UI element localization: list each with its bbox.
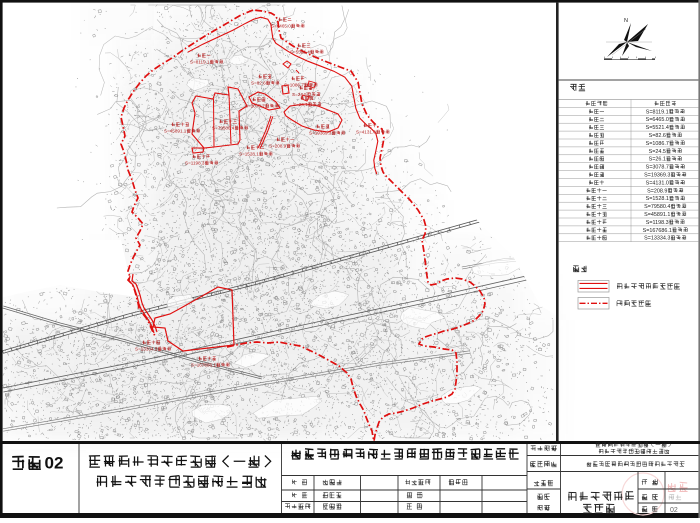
svg-text:S=45891.1: S=45891.1 — [644, 212, 670, 218]
svg-text:S=8119.1: S=8119.1 — [190, 60, 210, 65]
svg-text:S=19369.3: S=19369.3 — [644, 173, 670, 179]
svg-text:S=26.1: S=26.1 — [649, 157, 666, 163]
svg-text:S=3078.7: S=3078.7 — [245, 104, 265, 109]
svg-text:S=5521.4: S=5521.4 — [646, 125, 669, 131]
svg-text:S=5521.4: S=5521.4 — [290, 50, 310, 55]
svg-text:S=167686.1: S=167686.1 — [191, 363, 216, 368]
svg-text:S=13334.3: S=13334.3 — [644, 236, 670, 242]
svg-text:S=208.9: S=208.9 — [269, 144, 287, 149]
svg-text:S=1198.3: S=1198.3 — [185, 161, 205, 166]
svg-text:02: 02 — [670, 507, 678, 514]
svg-text:N: N — [624, 18, 628, 24]
svg-text:S=13334.3: S=13334.3 — [135, 347, 158, 352]
svg-text:S=1528.1: S=1528.1 — [239, 152, 259, 157]
svg-text:S=1086.7: S=1086.7 — [646, 141, 669, 147]
svg-text:S=4131.0: S=4131.0 — [646, 180, 669, 186]
svg-text:S=1528.1: S=1528.1 — [646, 196, 669, 202]
svg-text:S=6465.0: S=6465.0 — [646, 117, 669, 123]
svg-text:S=82.6: S=82.6 — [251, 81, 266, 86]
svg-text:S=1198.3: S=1198.3 — [646, 220, 669, 226]
svg-text:S=79580.4: S=79580.4 — [644, 204, 670, 210]
svg-text:S=8119.1: S=8119.1 — [646, 109, 669, 115]
svg-text:S=26.1: S=26.1 — [293, 102, 308, 107]
svg-text:S=6465.0: S=6465.0 — [271, 24, 291, 29]
svg-text:S=24.5: S=24.5 — [292, 92, 307, 97]
svg-text:S=24.5: S=24.5 — [649, 149, 666, 155]
svg-text:02: 02 — [45, 454, 64, 473]
svg-text:S=19369.3: S=19369.3 — [309, 131, 332, 136]
svg-text:S=1086.7: S=1086.7 — [284, 83, 304, 88]
svg-text:S=208.9: S=208.9 — [647, 188, 667, 194]
svg-text:S=45891.1: S=45891.1 — [164, 129, 187, 134]
svg-text:S=3078.7: S=3078.7 — [646, 165, 669, 171]
svg-text:S=82.6: S=82.6 — [649, 133, 666, 139]
svg-text:S=4131.0: S=4131.0 — [356, 130, 376, 135]
svg-text:S=79580.4: S=79580.4 — [212, 126, 235, 131]
svg-text:S=167686.1: S=167686.1 — [643, 228, 672, 234]
